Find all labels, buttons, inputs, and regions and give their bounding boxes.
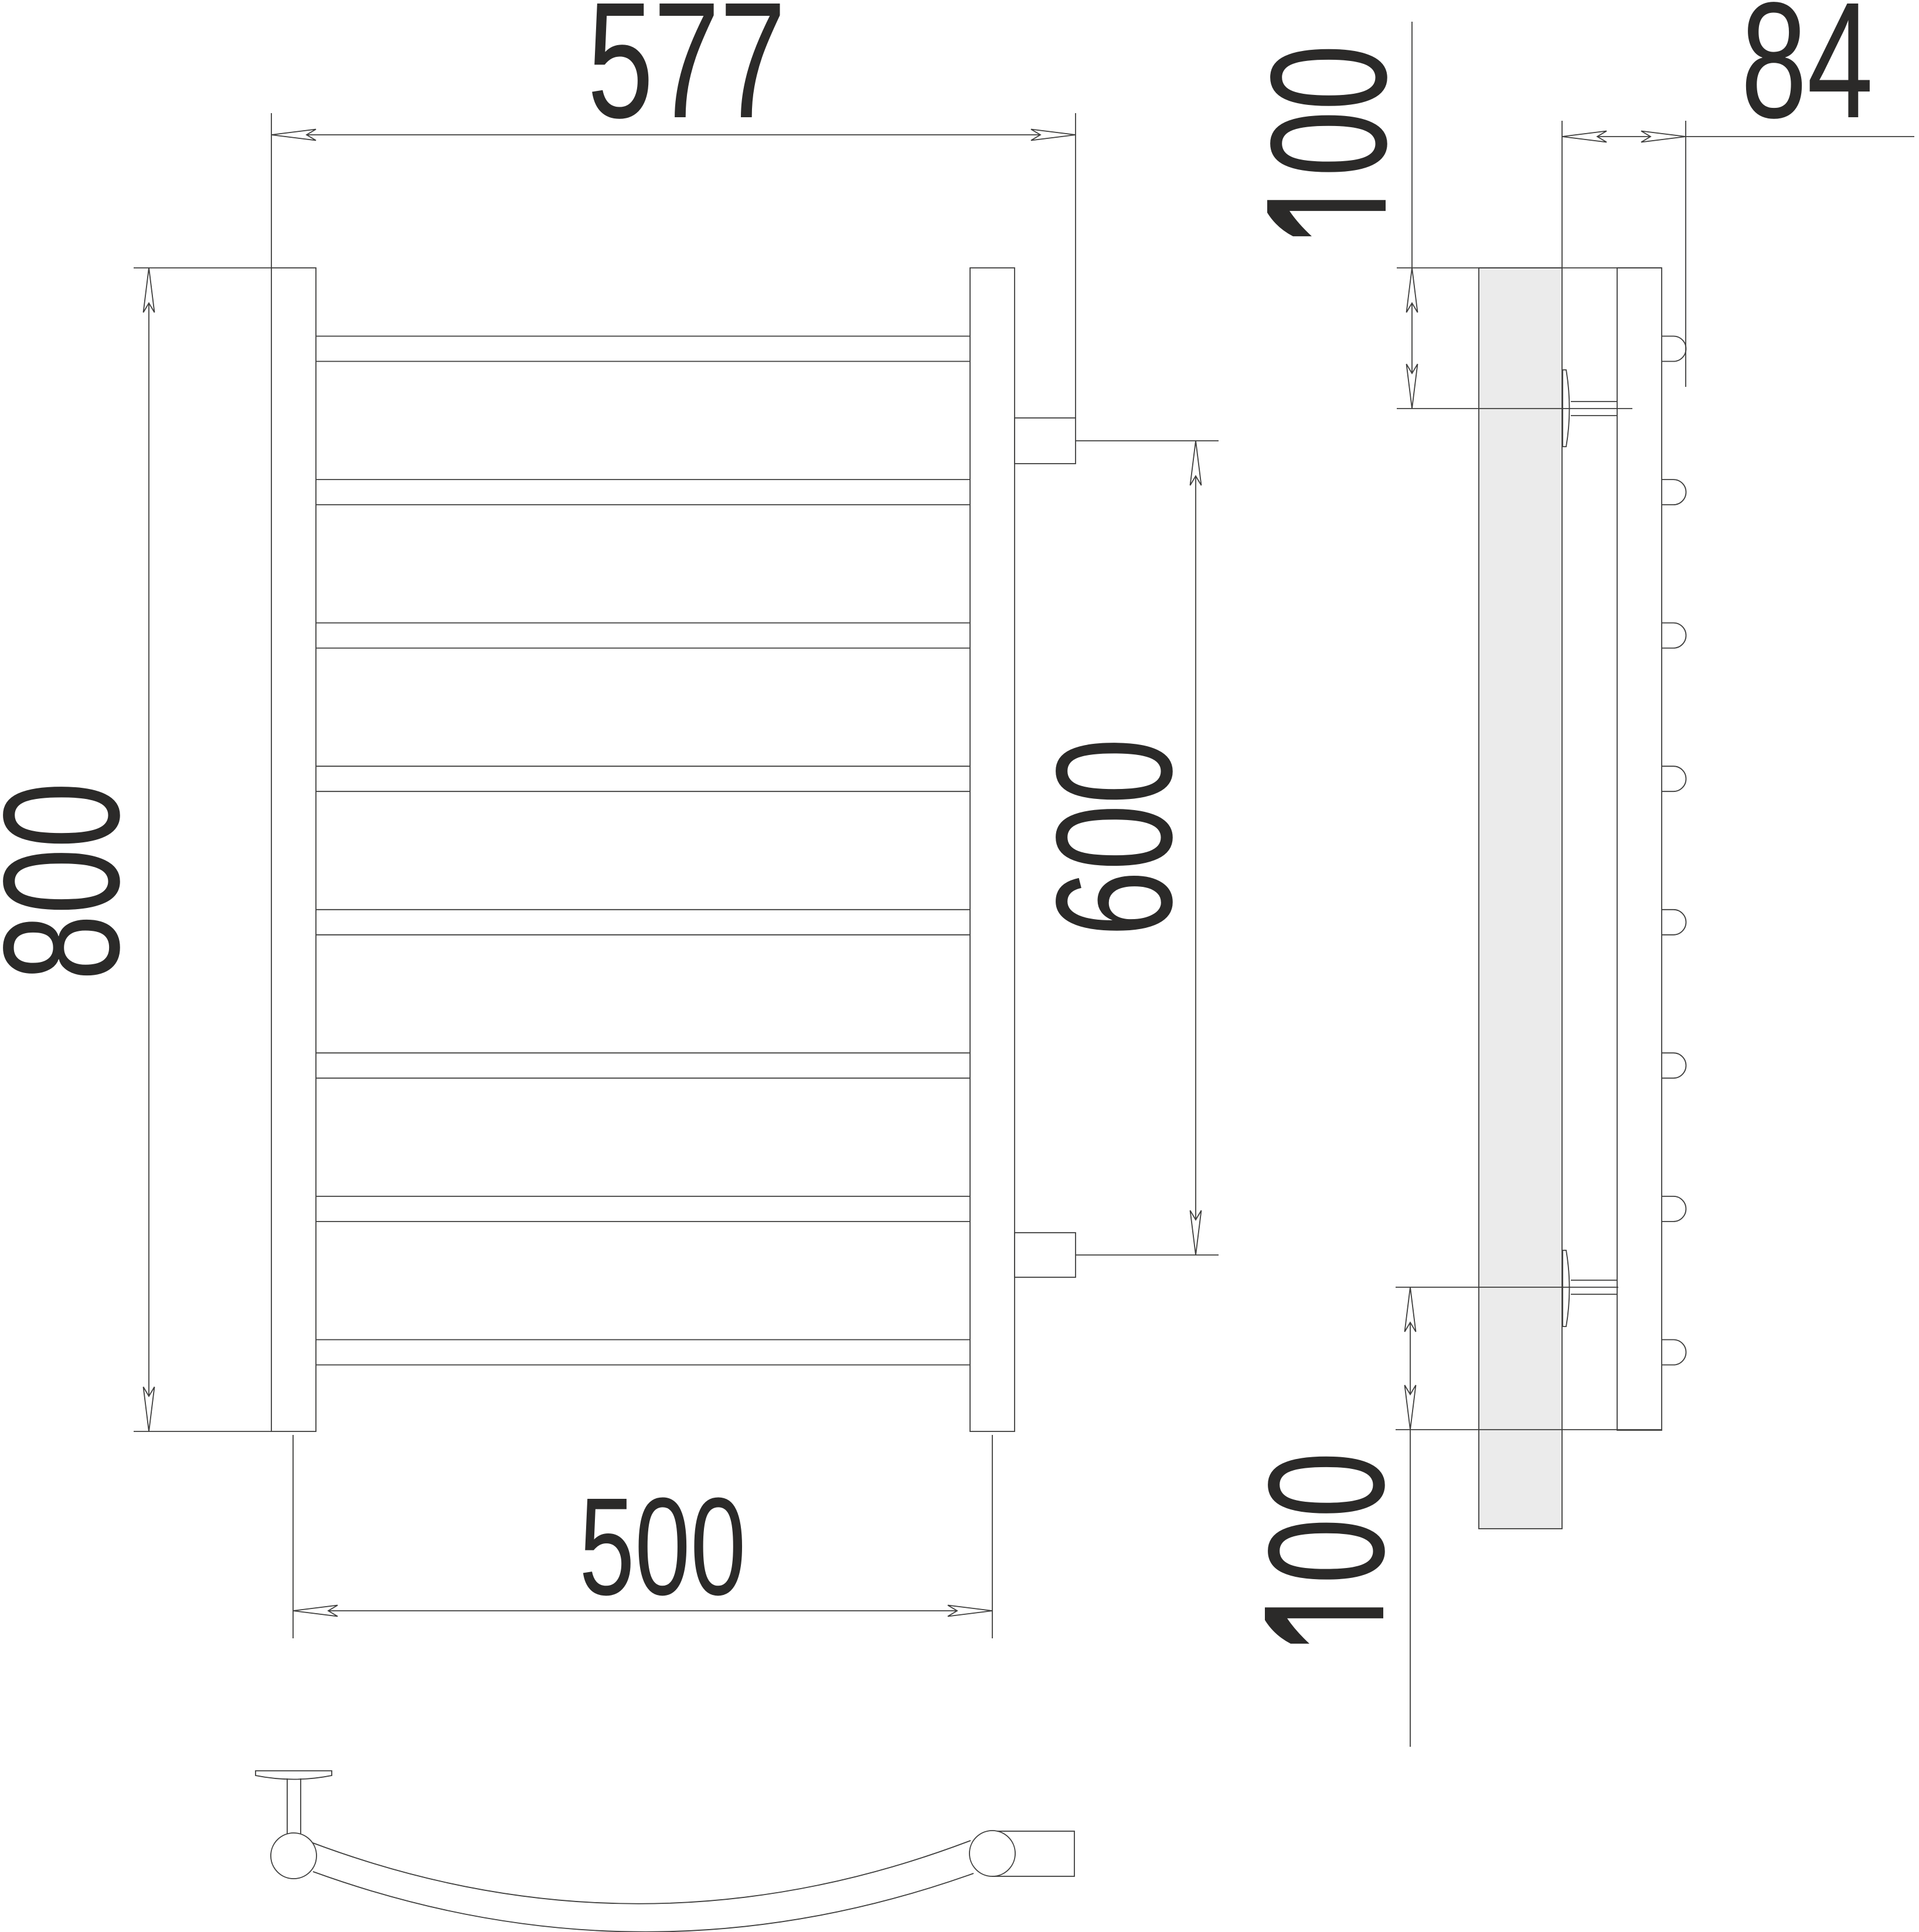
svg-text:00: 00 <box>1234 1452 1418 1584</box>
svg-text:800: 800 <box>0 782 154 981</box>
svg-text:577: 577 <box>587 0 786 153</box>
svg-text:84: 84 <box>1741 0 1873 153</box>
svg-text:00: 00 <box>1237 45 1421 177</box>
svg-text:600: 600 <box>1022 738 1206 937</box>
svg-text:500: 500 <box>579 1468 746 1624</box>
